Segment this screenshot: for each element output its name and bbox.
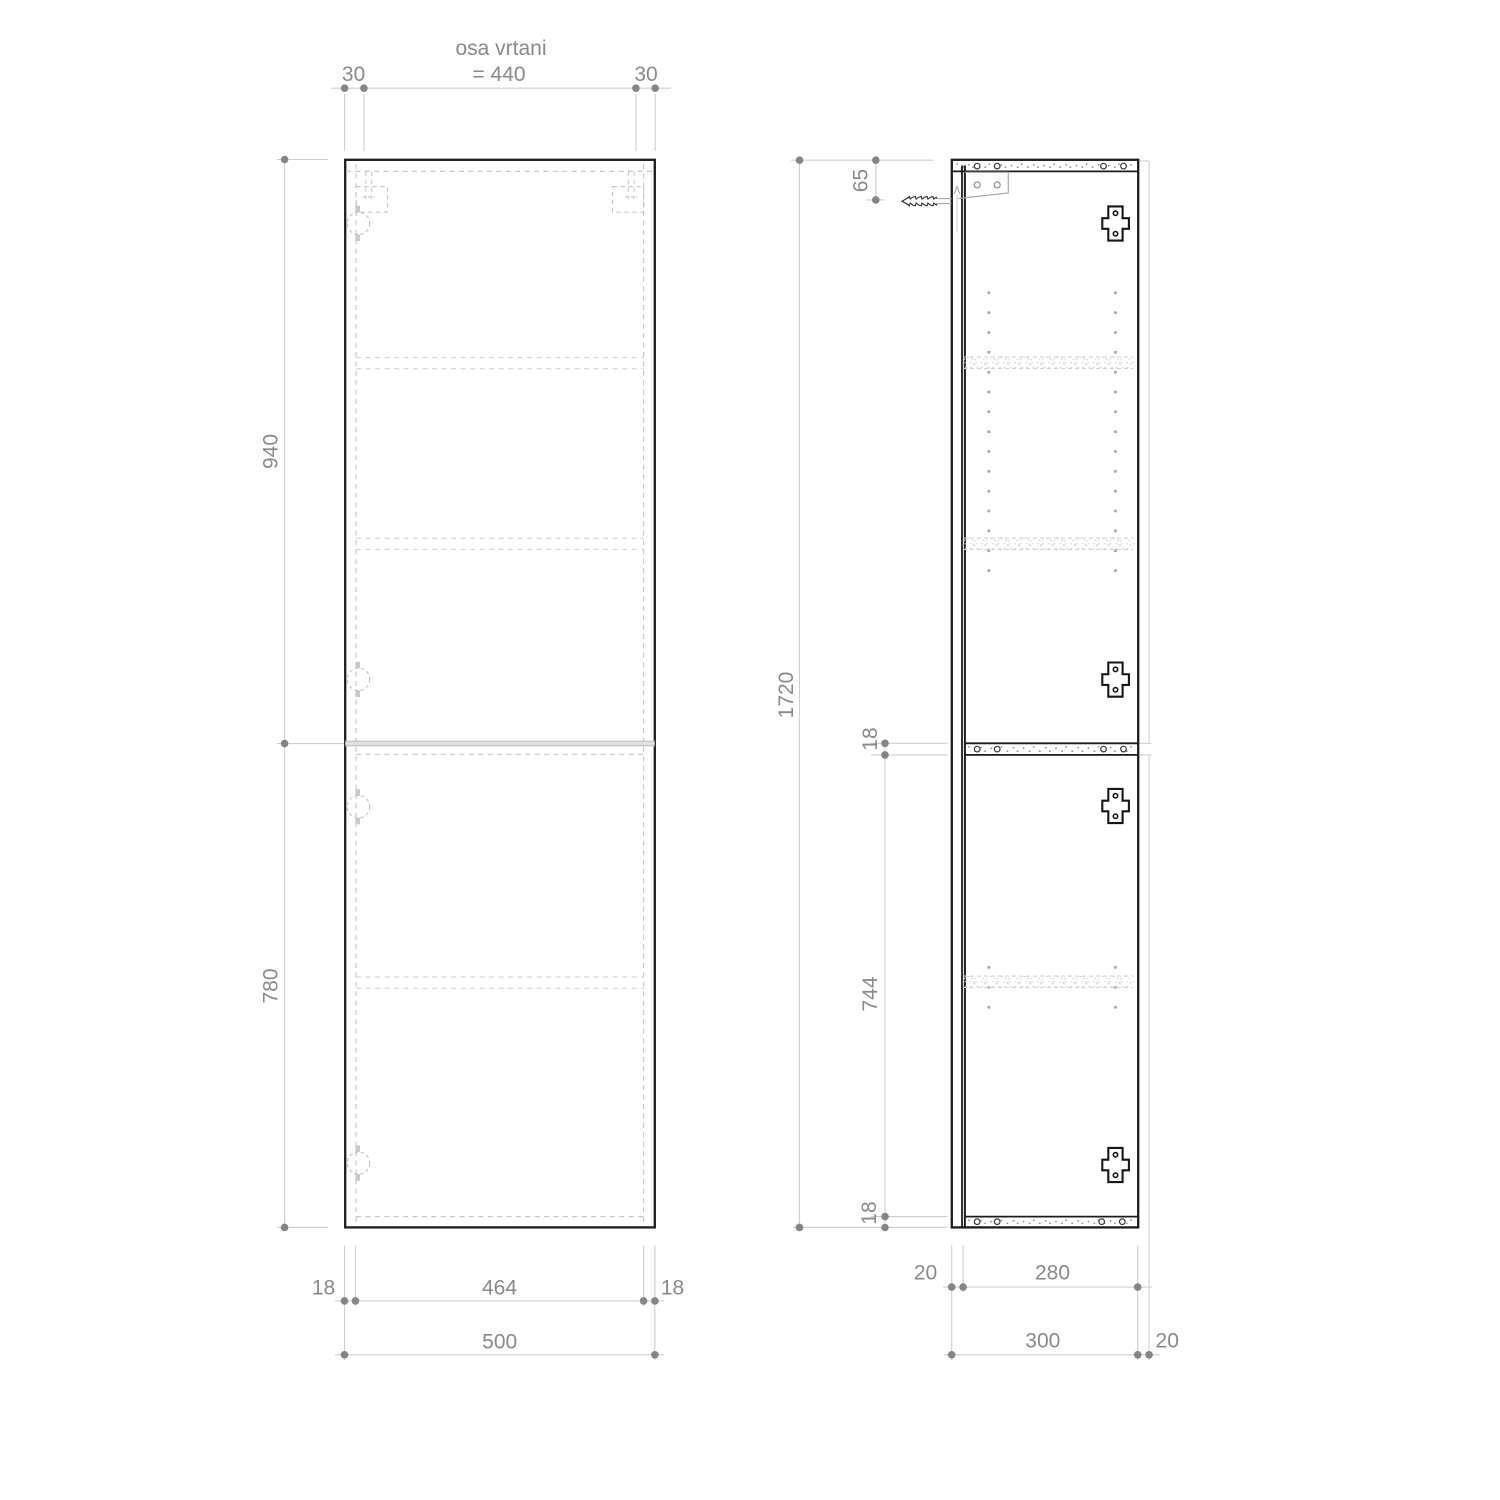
svg-text:30: 30 <box>342 63 365 86</box>
svg-text:20: 20 <box>1156 1330 1179 1353</box>
svg-text:= 440: = 440 <box>472 63 525 86</box>
svg-text:500: 500 <box>482 1331 517 1354</box>
svg-text:780: 780 <box>260 968 283 1003</box>
svg-text:30: 30 <box>634 63 657 86</box>
svg-text:18: 18 <box>859 727 882 750</box>
svg-text:18: 18 <box>661 1277 684 1300</box>
svg-text:744: 744 <box>859 976 882 1011</box>
svg-text:280: 280 <box>1035 1262 1070 1285</box>
svg-text:1720: 1720 <box>775 672 798 719</box>
svg-text:18: 18 <box>858 1201 881 1224</box>
svg-text:464: 464 <box>482 1277 517 1300</box>
svg-text:940: 940 <box>260 434 283 469</box>
svg-text:65: 65 <box>850 169 873 192</box>
svg-text:osa vrtani: osa vrtani <box>455 37 546 60</box>
svg-text:300: 300 <box>1025 1330 1060 1353</box>
svg-text:18: 18 <box>312 1277 335 1300</box>
svg-text:20: 20 <box>914 1262 937 1285</box>
